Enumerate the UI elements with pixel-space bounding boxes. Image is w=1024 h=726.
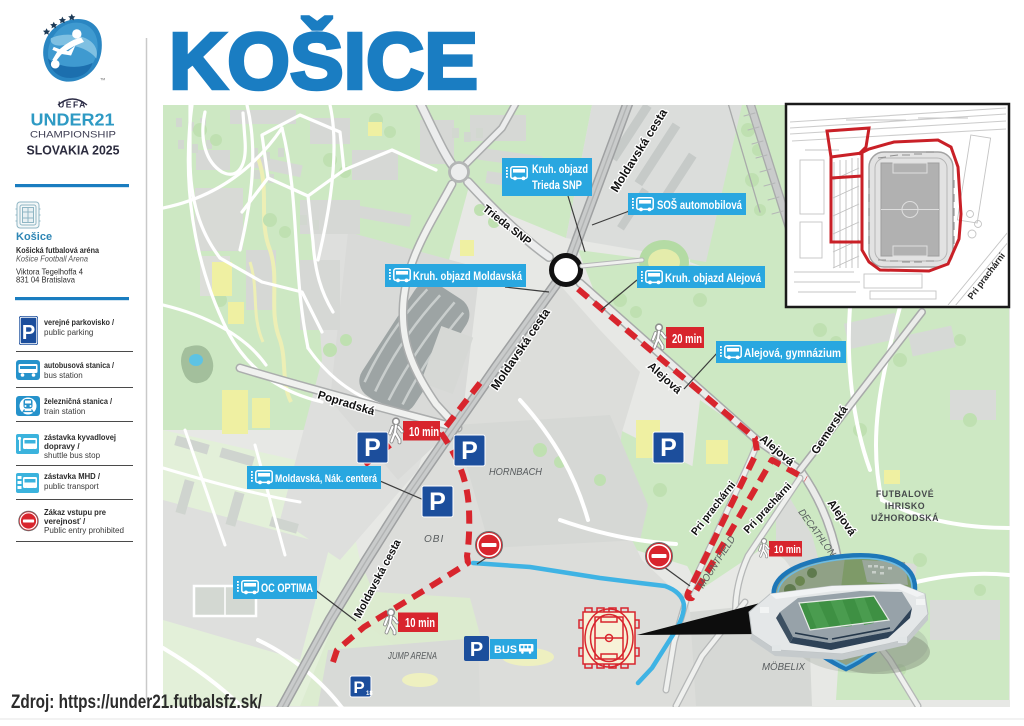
svg-text:verejnosť /: verejnosť /	[44, 517, 86, 526]
svg-text:OC OPTIMA: OC OPTIMA	[261, 583, 313, 595]
svg-text:10 min: 10 min	[409, 425, 439, 439]
svg-text:zástavka MHD /: zástavka MHD /	[44, 472, 101, 481]
svg-text:Kruh. objazd: Kruh. objazd	[532, 164, 588, 176]
svg-text:Alejová, gymnázium: Alejová, gymnázium	[744, 348, 841, 360]
svg-text:Moldavská, Nák. centerá: Moldavská, Nák. centerá	[275, 473, 378, 485]
svg-text:dopravy /: dopravy /	[44, 442, 80, 451]
svg-text:BUS: BUS	[494, 644, 517, 656]
svg-text:P: P	[660, 434, 677, 462]
svg-text:železničná stanica /: železničná stanica /	[44, 397, 113, 406]
svg-text:P: P	[364, 434, 381, 462]
svg-text:20 min: 20 min	[672, 332, 702, 346]
svg-text:Košice Football Arena: Košice Football Arena	[16, 254, 88, 264]
svg-text:train station: train station	[44, 407, 85, 416]
svg-text:Public entry prohibited: Public entry prohibited	[44, 526, 124, 535]
svg-text:™: ™	[100, 78, 106, 84]
svg-text:UŽHORODSKÁ: UŽHORODSKÁ	[871, 512, 939, 523]
svg-text:FUTBALOVÉ: FUTBALOVÉ	[876, 489, 934, 499]
svg-text:Trieda SNP: Trieda SNP	[532, 180, 582, 192]
svg-text:P: P	[353, 678, 364, 697]
svg-text:P: P	[22, 322, 35, 344]
svg-text:KOŠICE: KOŠICE	[169, 17, 478, 106]
svg-text:shuttle bus stop: shuttle bus stop	[44, 451, 101, 460]
svg-text:831 04 Bratislava: 831 04 Bratislava	[16, 275, 75, 285]
svg-text:IHRISKO: IHRISKO	[885, 501, 925, 511]
svg-text:verejné parkovisko /: verejné parkovisko /	[44, 318, 115, 327]
svg-text:P: P	[470, 639, 483, 661]
svg-text:UEFA: UEFA	[58, 100, 87, 110]
svg-text:Kruh. objazd Moldavská: Kruh. objazd Moldavská	[413, 271, 522, 283]
svg-text:P: P	[461, 437, 478, 465]
svg-text:autobusová stanica /: autobusová stanica /	[44, 361, 115, 370]
svg-text:SLOVAKIA 2025: SLOVAKIA 2025	[27, 143, 120, 158]
svg-text:Kruh. objazd Alejová: Kruh. objazd Alejová	[665, 273, 762, 285]
svg-text:10 min: 10 min	[774, 544, 801, 556]
svg-text:bus station: bus station	[44, 371, 83, 380]
svg-text:P: P	[429, 488, 446, 516]
svg-text:Zdroj: https://under21.futbals: Zdroj: https://under21.futbalsfz.sk/	[11, 692, 263, 713]
svg-text:CHAMPIONSHIP: CHAMPIONSHIP	[30, 130, 116, 140]
svg-text:Košice: Košice	[16, 231, 52, 243]
svg-text:SOŠ automobilová: SOŠ automobilová	[657, 199, 742, 212]
svg-text:HORNBACH: HORNBACH	[489, 467, 543, 478]
svg-text:18: 18	[366, 691, 373, 697]
svg-text:public transport: public transport	[44, 482, 99, 491]
svg-text:OBI: OBI	[424, 534, 444, 545]
svg-text:MÖBELIX: MÖBELIX	[762, 661, 805, 673]
svg-text:zástavka kyvadlovej: zástavka kyvadlovej	[44, 433, 116, 442]
svg-text:public parking: public parking	[44, 328, 93, 337]
svg-text:Zákaz vstupu pre: Zákaz vstupu pre	[44, 508, 107, 517]
svg-text:10 min: 10 min	[405, 616, 435, 630]
svg-text:UNDER21: UNDER21	[31, 109, 115, 129]
svg-text:JUMP ARENA: JUMP ARENA	[387, 651, 437, 662]
